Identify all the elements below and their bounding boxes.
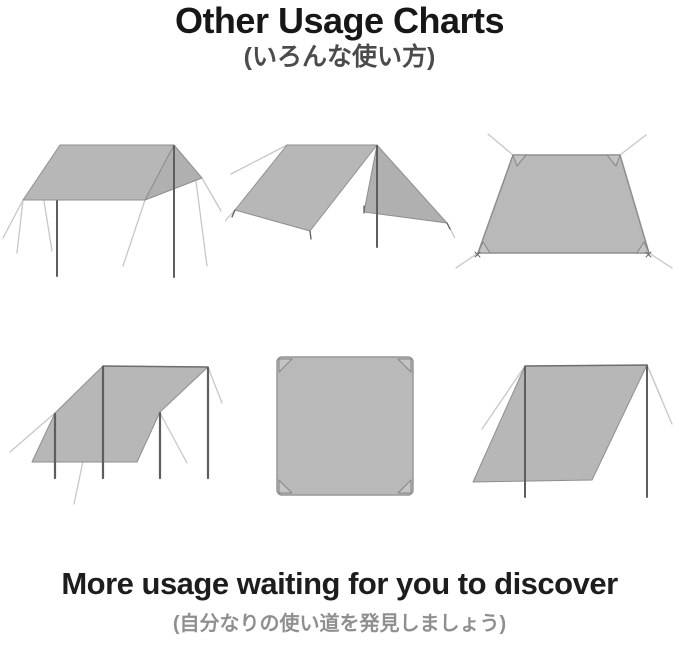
a-frame-tarp-diagram-icon <box>225 130 455 285</box>
tarp-awning <box>32 366 208 462</box>
flat-canopy-diagram-icon <box>0 130 225 285</box>
page-title: Other Usage Charts <box>0 0 679 41</box>
ground-sheet <box>478 155 649 253</box>
tarp-lean-to <box>473 365 647 482</box>
flat-tarp-top-view-diagram-icon <box>250 340 450 515</box>
ground-sheet-diagram-icon <box>455 120 679 285</box>
awning-lean-to-diagram-icon <box>0 340 240 515</box>
lean-to-shelter-diagram-icon <box>450 340 679 515</box>
infographic-page: { "header": { "title": "Other Usage Char… <box>0 0 679 648</box>
ridge-edge <box>103 366 208 367</box>
page-subtitle-japanese: (いろんな使い方) <box>0 42 679 72</box>
ridge-edge <box>525 365 647 366</box>
square-tarp <box>277 357 413 495</box>
footer-title: More usage waiting for you to discover <box>0 566 679 602</box>
tarp-panels <box>235 145 447 231</box>
tarp-canopy <box>23 145 202 200</box>
footer-subtitle-japanese: (自分なりの使い道を発見しましょう) <box>0 612 679 636</box>
